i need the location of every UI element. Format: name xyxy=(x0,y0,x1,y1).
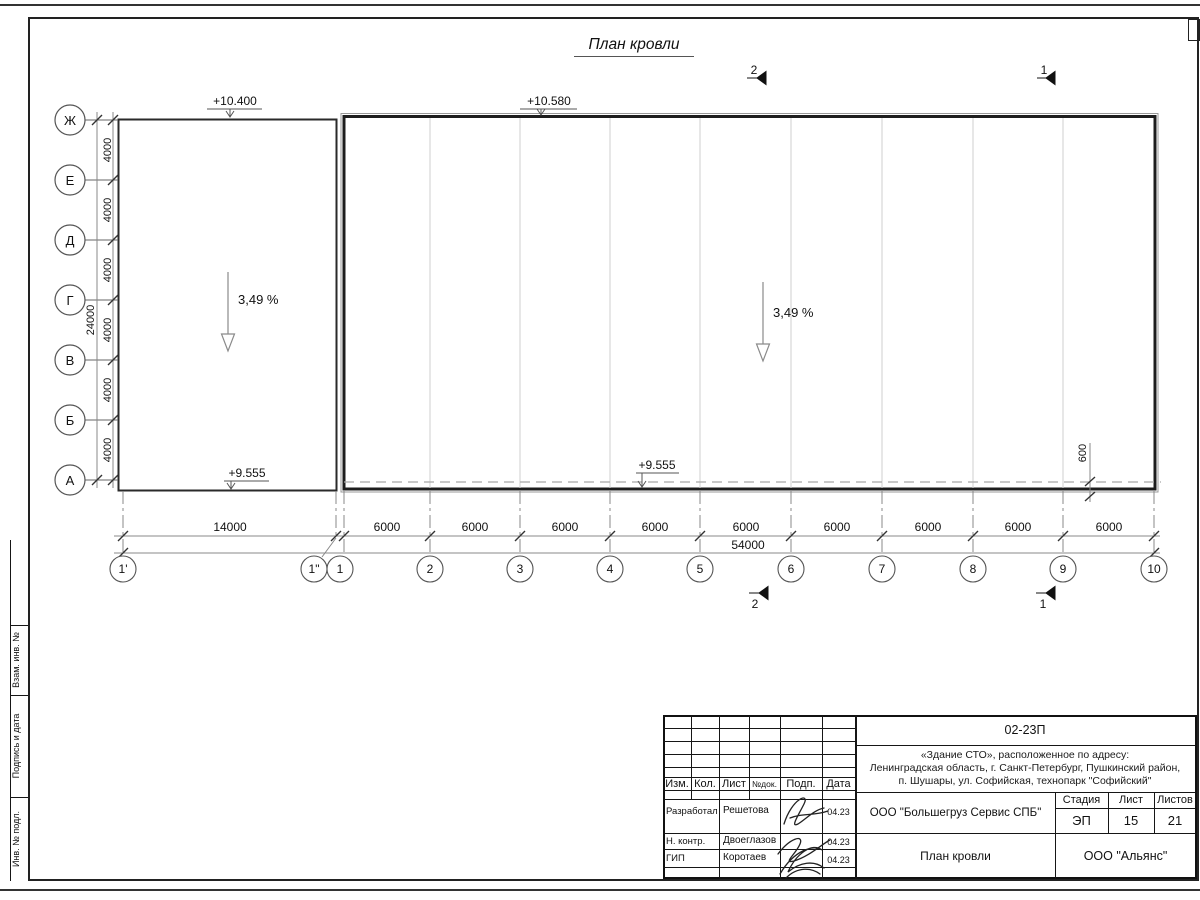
section-marker-label: 1 xyxy=(1040,597,1047,611)
tb-project: «Здание СТО», расположенное по адресу: Л… xyxy=(857,747,1193,790)
svg-text:6000: 6000 xyxy=(824,520,851,534)
axis-bubble-label: 4 xyxy=(607,562,614,576)
offset-label: 600 xyxy=(1077,444,1089,462)
tb-role: Разработал xyxy=(666,806,718,817)
tb-header-izm: Изм. xyxy=(663,778,691,790)
svg-text:4000: 4000 xyxy=(102,138,114,162)
side-label-inv: Инв. № подл. xyxy=(11,797,27,881)
elevation-label: +9.555 xyxy=(228,466,265,480)
axis-bubble-label: Е xyxy=(66,173,75,188)
tb-sheet-title: План кровли xyxy=(857,834,1054,878)
tb-line xyxy=(663,754,855,755)
row-axis-bubbles: Ж Е Д Г В Б А xyxy=(55,105,85,495)
dim-label: 14000 xyxy=(213,520,247,534)
tb-org: ООО "Альянс" xyxy=(1056,834,1195,878)
tb-doc-number: 02-23П xyxy=(857,716,1193,744)
svg-text:6000: 6000 xyxy=(374,520,401,534)
tb-line xyxy=(663,767,855,768)
axis-bubble-label: Ж xyxy=(64,113,76,128)
elevation-label: +10.580 xyxy=(527,94,571,108)
tb-project-line: «Здание СТО», расположенное по адресу: xyxy=(921,749,1129,762)
tb-company: ООО "Большегруз Сервис СПБ" xyxy=(857,793,1054,832)
tb-project-line: п. Шушары, ул. Софийская, технопарк "Соф… xyxy=(899,775,1152,788)
svg-text:6000: 6000 xyxy=(915,520,942,534)
tb-name: Двоеглазов xyxy=(723,835,776,846)
tb-sheets-value: 21 xyxy=(1155,809,1195,832)
drawing-sheet: Взам. инв. № Подпись и дата Инв. № подл.… xyxy=(0,0,1200,900)
axis-bubble-label: 7 xyxy=(879,562,886,576)
tb-sheet-header: Лист xyxy=(1109,793,1153,807)
col-axis-bubbles: 1' 1" 1 2 3 4 5 6 7 8 9 10 xyxy=(110,556,1167,582)
tb-header-kol: Кол. xyxy=(691,778,719,790)
axis-bubble-label: 5 xyxy=(697,562,704,576)
section-marker-label: 2 xyxy=(751,63,758,77)
svg-text:6000: 6000 xyxy=(733,520,760,534)
svg-text:4000: 4000 xyxy=(102,198,114,222)
tb-line xyxy=(855,745,1195,746)
tb-stage-value: ЭП xyxy=(1056,809,1107,832)
svg-text:6000: 6000 xyxy=(1005,520,1032,534)
svg-text:4000: 4000 xyxy=(102,438,114,462)
tb-role: ГИП xyxy=(666,853,685,864)
svg-text:4000: 4000 xyxy=(102,258,114,282)
col-total-label: 54000 xyxy=(731,538,765,552)
svg-text:4000: 4000 xyxy=(102,378,114,402)
axis-bubble-label: 2 xyxy=(427,562,434,576)
slope-label: 3,49 % xyxy=(773,305,814,320)
axis-bubble-label: Б xyxy=(66,413,75,428)
svg-text:6000: 6000 xyxy=(642,520,669,534)
tb-project-line: Ленинградская область, г. Санкт-Петербур… xyxy=(870,762,1180,775)
tb-line xyxy=(663,741,855,742)
svg-text:4000: 4000 xyxy=(102,318,114,342)
svg-text:6000: 6000 xyxy=(552,520,579,534)
roof-plan-canvas: Ж Е Д Г В Б А 4000 4000 4000 4000 4000 4… xyxy=(0,0,1200,660)
tb-stage-header: Стадия xyxy=(1056,793,1107,807)
tb-line xyxy=(719,715,720,879)
svg-text:6000: 6000 xyxy=(1096,520,1123,534)
building-right-outer xyxy=(341,114,1158,493)
signature-icon xyxy=(770,788,840,880)
elevation-label: +9.555 xyxy=(638,458,675,472)
axis-bubble-label: В xyxy=(66,353,75,368)
tb-name: Решетова xyxy=(723,805,769,816)
axis-bubble-label: 3 xyxy=(517,562,524,576)
axis-bubble-label: 1' xyxy=(119,562,128,576)
tb-sheets-header: Листов xyxy=(1155,793,1195,807)
tb-role: Н. контр. xyxy=(666,836,705,847)
tb-line xyxy=(663,728,855,729)
axis-bubble-label: Г xyxy=(66,293,73,308)
outer-bottom-line xyxy=(0,889,1200,891)
section-marker-label: 1 xyxy=(1041,63,1048,77)
axis-bubble-label: 6 xyxy=(788,562,795,576)
elevation-label: +10.400 xyxy=(213,94,257,108)
tb-name: Коротаев xyxy=(723,852,766,863)
axis-bubble-label: 10 xyxy=(1147,562,1161,576)
svg-text:6000: 6000 xyxy=(462,520,489,534)
side-label-podpis: Подпись и дата xyxy=(11,695,27,797)
dim-ticks-cols xyxy=(118,531,1159,558)
tb-header-list: Лист xyxy=(719,778,749,790)
axis-bubble-label: А xyxy=(66,473,75,488)
leader-axis-1quote xyxy=(322,538,336,557)
axis-bubble-label: 1 xyxy=(337,562,344,576)
tb-sheet-value: 15 xyxy=(1109,809,1153,832)
axis-bubble-label: 1" xyxy=(309,562,320,576)
row-total-label: 24000 xyxy=(85,305,97,336)
slope-label: 3,49 % xyxy=(238,292,279,307)
axis-bubble-label: Д xyxy=(66,233,75,248)
axis-bubble-label: 9 xyxy=(1060,562,1067,576)
section-marker-label: 2 xyxy=(752,597,759,611)
axis-bubble-label: 8 xyxy=(970,562,977,576)
